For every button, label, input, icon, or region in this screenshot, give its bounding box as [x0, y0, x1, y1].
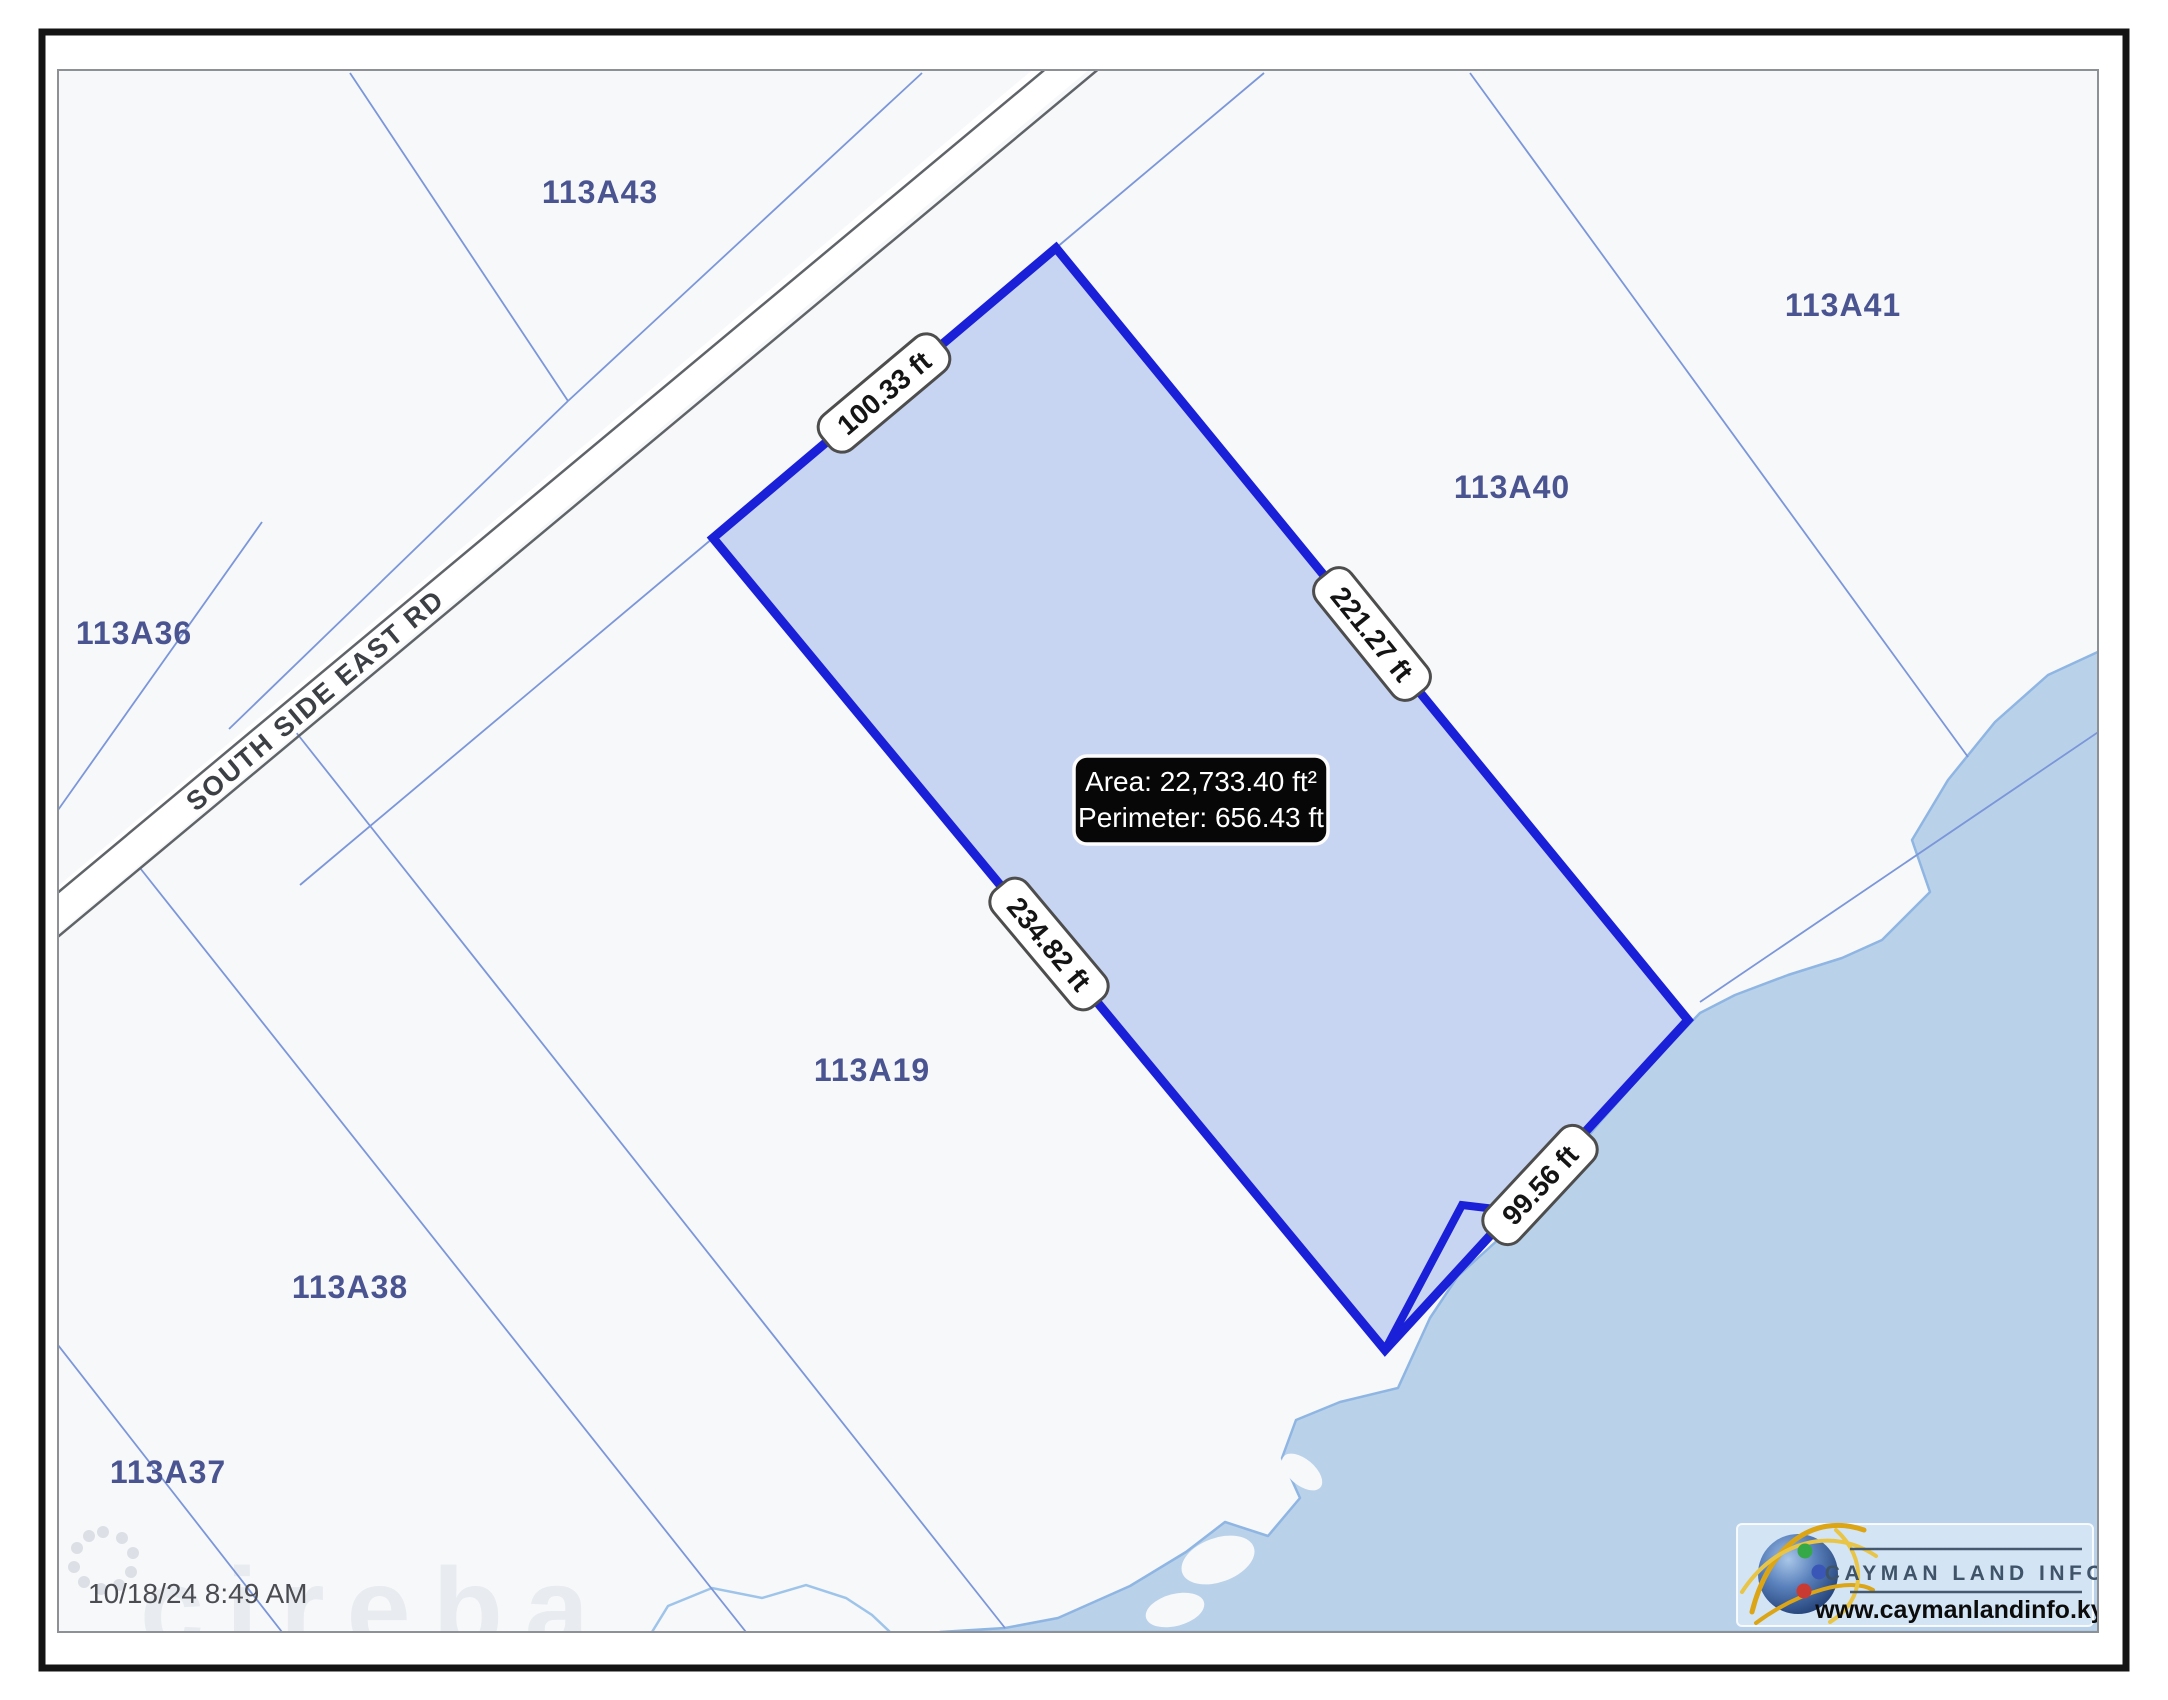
- logo-panel: CAYMAN LAND INFO www.caymanlandinfo.ky: [1737, 1524, 2107, 1626]
- area-value: Area: 22,733.40 ft²: [1085, 766, 1317, 797]
- timestamp: 10/18/24 8:49 AM: [88, 1578, 308, 1609]
- parcel-label-113A40: 113A40: [1454, 469, 1570, 505]
- map-export-page: SOUTH SIDE EAST RD 113A43 113A41 113A40 …: [0, 0, 2168, 1700]
- parcel-label-113A19: 113A19: [814, 1052, 930, 1088]
- watermark-text: cireba: [140, 1545, 611, 1673]
- logo-title: CAYMAN LAND INFO: [1825, 1562, 2107, 1585]
- parcel-label-113A37: 113A37: [110, 1454, 226, 1490]
- perimeter-value: Perimeter: 656.43 ft: [1078, 802, 1324, 833]
- parcel-label-113A36: 113A36: [76, 615, 192, 651]
- parcel-label-113A43: 113A43: [542, 174, 658, 210]
- parcel-info-box: Area: 22,733.40 ft² Perimeter: 656.43 ft: [1074, 756, 1328, 844]
- logo-website: www.caymanlandinfo.ky: [1814, 1596, 2105, 1624]
- parcel-label-113A38: 113A38: [292, 1269, 408, 1305]
- cadastral-map: SOUTH SIDE EAST RD 113A43 113A41 113A40 …: [0, 0, 2168, 1700]
- parcel-label-113A41: 113A41: [1785, 287, 1901, 323]
